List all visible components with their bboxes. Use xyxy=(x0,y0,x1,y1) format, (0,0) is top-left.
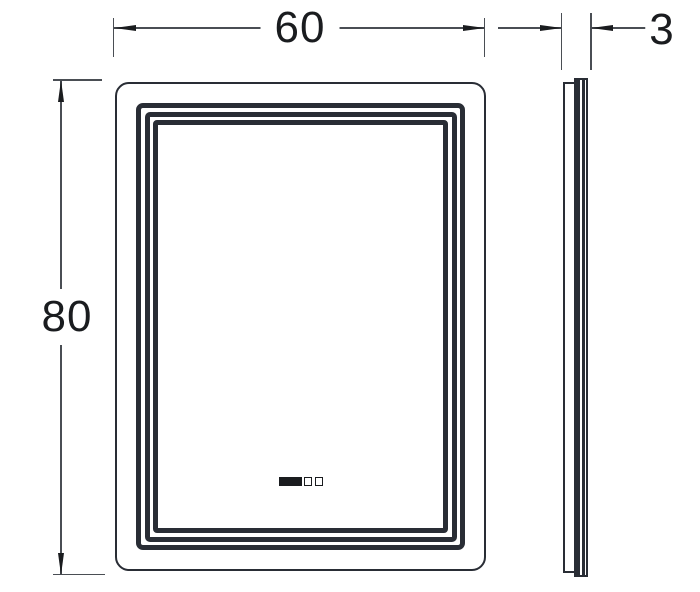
mirror-front-view xyxy=(115,82,486,571)
led-frame-outer xyxy=(136,103,465,550)
touch-sensor-button-icon xyxy=(304,477,312,486)
depth-dimension-label: 3 xyxy=(645,6,678,54)
led-frame-inner xyxy=(153,120,448,533)
width-dimension-label: 60 xyxy=(261,4,340,52)
arrowhead-left-icon xyxy=(114,25,136,31)
touch-sensor-button-icon xyxy=(315,477,323,486)
arrowhead-up-icon xyxy=(58,80,64,102)
arrowhead-right-icon xyxy=(463,25,485,31)
arrowhead-right-icon xyxy=(540,25,562,31)
height-dimension-label: 80 xyxy=(38,289,97,345)
arrowhead-left-icon xyxy=(591,25,613,31)
side-view-glass-panel xyxy=(574,78,588,577)
extension-line xyxy=(590,13,592,70)
touch-sensor-panel xyxy=(279,477,323,486)
touch-sensor-bar-icon xyxy=(279,477,302,486)
technical-drawing: 60 80 3 xyxy=(0,0,700,592)
extension-line xyxy=(561,13,563,70)
led-frame-middle xyxy=(145,112,457,542)
side-view-glass-line xyxy=(586,80,589,575)
arrowhead-down-icon xyxy=(58,553,64,575)
